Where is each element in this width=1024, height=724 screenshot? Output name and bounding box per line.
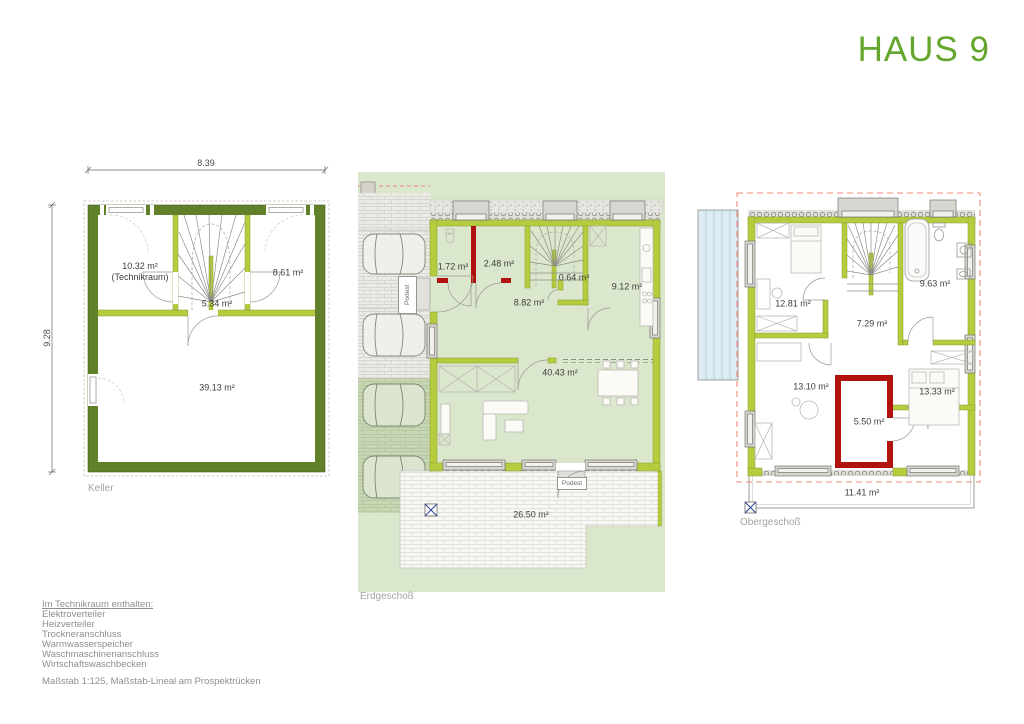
room-label-og-zimmer-links: 12.81 m²	[775, 299, 811, 310]
obergeschoss-drawing	[693, 183, 1005, 535]
room-label-ankleide: 5.50 m²	[854, 417, 885, 428]
podest-terrace-label: Podest	[557, 477, 587, 490]
erdgeschoss-plan: Podest Podest 1.72 m² 2.48 m² 0.64 m² 8.…	[353, 168, 673, 613]
podest-entry-label: Podest	[398, 276, 417, 314]
room-label-zimmer-unten-links: 13.10 m²	[793, 382, 829, 393]
room-label-balkon: 11.41 m²	[845, 488, 880, 499]
room-label-eg-flur: 8.82 m²	[514, 298, 545, 309]
room-label-bad: 9.63 m²	[920, 279, 951, 290]
keller-width-dimension: 8.39	[197, 158, 215, 168]
erdgeschoss-drawing	[353, 168, 673, 613]
room-label-wohnen: 40.43 m²	[542, 368, 578, 379]
legend-item: Wirtschaftswaschbecken	[42, 660, 362, 670]
obergeschoss-floor-label: Obergeschoß	[740, 517, 801, 528]
erdgeschoss-floor-label: Erdgeschoß	[360, 591, 414, 602]
carport-roof	[698, 210, 738, 380]
keller-floor-label: Keller	[88, 483, 114, 494]
room-label-windfang: 2.48 m²	[484, 259, 515, 270]
room-label-og-flur: 7.29 m²	[857, 319, 888, 330]
room-label-abstellraum: 0.64 m²	[559, 273, 590, 284]
keller-plan: 8.39 9.28 10.32 m² (Technikraum) 8.61 m²…	[40, 152, 340, 502]
keller-height-dimension: 9.28	[42, 329, 52, 347]
room-label-kellerraum: 8.61 m²	[273, 268, 304, 279]
room-label-kueche: 9.12 m²	[612, 282, 643, 293]
obergeschoss-plan: 12.81 m² 9.63 m² 7.29 m² 13.10 m² 13.33 …	[693, 183, 1005, 535]
bathtub-icon	[905, 219, 929, 281]
floorplan-sheet: HAUS 9	[0, 0, 1024, 724]
room-label-terrasse: 26.50 m²	[513, 510, 549, 521]
room-label-hauptraum: 39.13 m²	[199, 383, 235, 394]
scale-note: Maßstab 1:125, Maßstab-Lineal am Prospek…	[42, 677, 362, 687]
room-label-wc: 1.72 m²	[438, 262, 469, 273]
page-title: HAUS 9	[858, 30, 990, 70]
room-label-technikraum: 10.32 m² (Technikraum)	[111, 261, 168, 283]
keller-drawing	[40, 152, 340, 502]
room-label-kellerflur: 5.34 m²	[202, 299, 233, 310]
room-label-zimmer-unten-rechts: 13.33 m²	[919, 387, 955, 398]
technikraum-legend: Im Technikraum enthalten: Elektroverteil…	[42, 600, 362, 687]
